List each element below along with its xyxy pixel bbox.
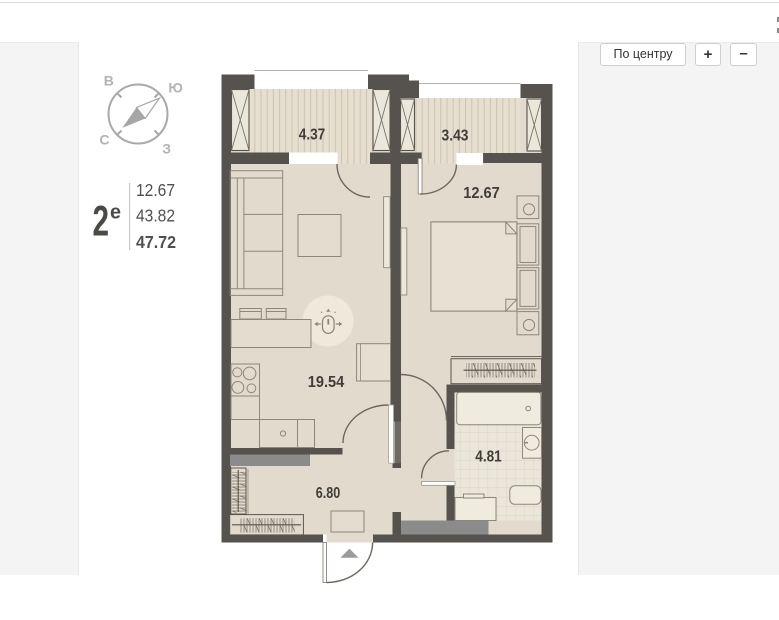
svg-text:3.43: 3.43 — [442, 128, 469, 145]
svg-text:4.81: 4.81 — [475, 449, 502, 466]
svg-text:4.37: 4.37 — [299, 126, 326, 143]
svg-text:е: е — [110, 202, 121, 224]
svg-text:З: З — [162, 141, 171, 157]
svg-text:Ю: Ю — [168, 80, 182, 96]
svg-text:6.80: 6.80 — [316, 485, 341, 502]
svg-text:2: 2 — [93, 198, 110, 246]
svg-text:47.72: 47.72 — [136, 232, 176, 252]
svg-text:С: С — [99, 132, 109, 148]
svg-text:43.82: 43.82 — [136, 205, 175, 225]
svg-text:19.54: 19.54 — [308, 374, 345, 391]
svg-text:12.67: 12.67 — [136, 180, 175, 200]
svg-text:В: В — [104, 73, 114, 89]
svg-text:12.67: 12.67 — [463, 185, 500, 202]
